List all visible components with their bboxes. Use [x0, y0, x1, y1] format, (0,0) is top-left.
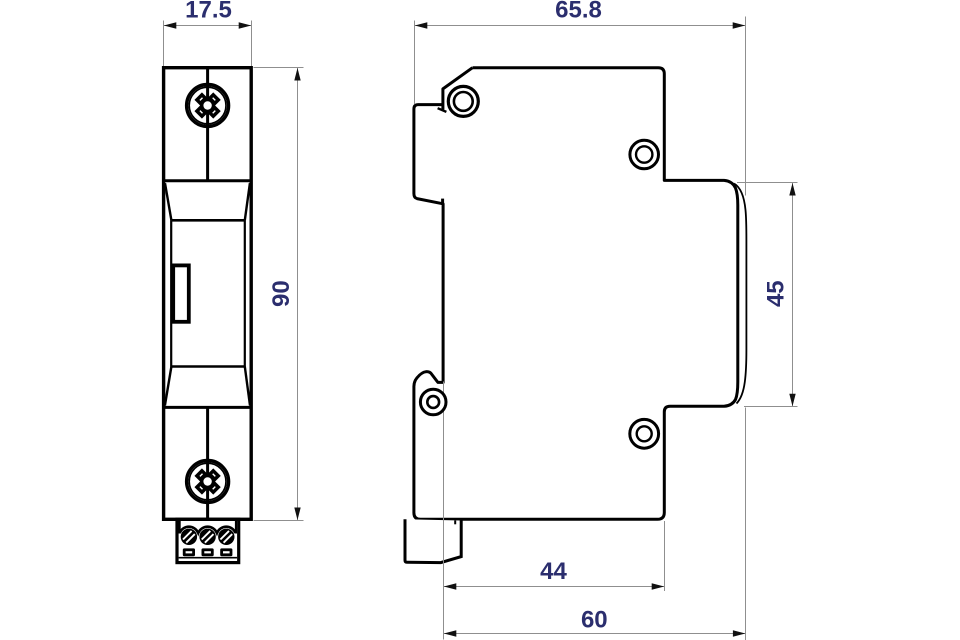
svg-text:45: 45 [763, 280, 790, 307]
svg-text:17.5: 17.5 [185, 0, 232, 24]
svg-text:44: 44 [540, 558, 567, 585]
svg-text:65.8: 65.8 [555, 0, 602, 24]
svg-text:90: 90 [268, 280, 295, 307]
svg-text:60: 60 [581, 607, 608, 634]
